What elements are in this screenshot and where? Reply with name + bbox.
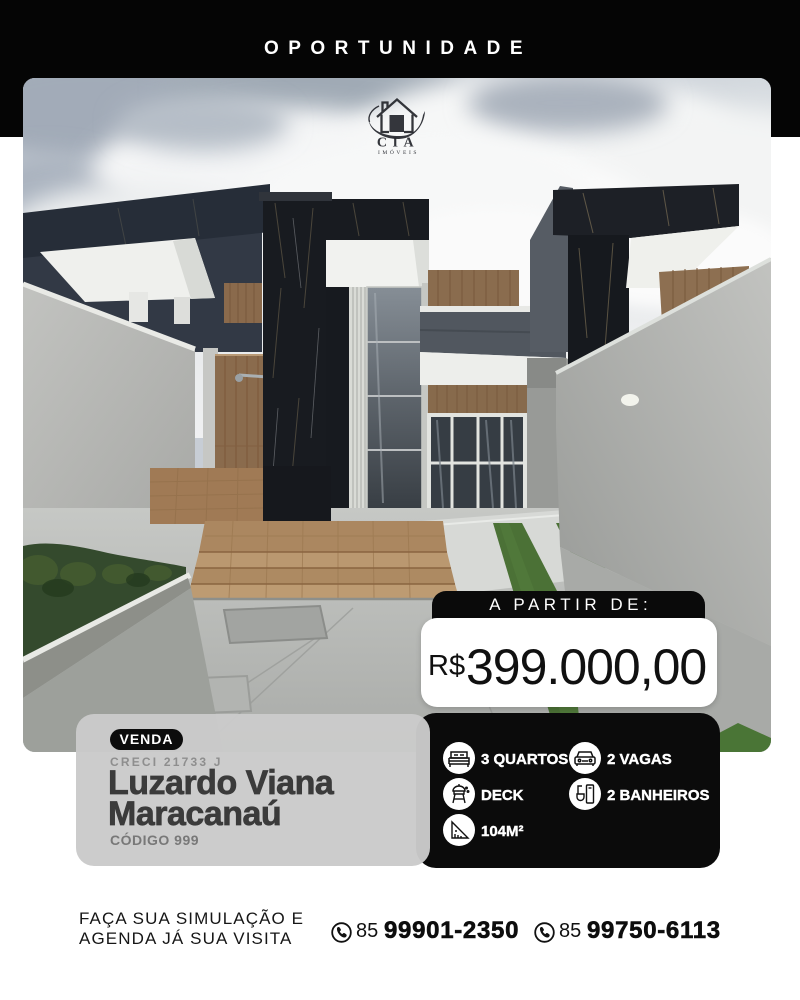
svg-text:IMÓVEIS: IMÓVEIS <box>378 148 419 156</box>
svg-text:CIA: CIA <box>377 136 419 151</box>
